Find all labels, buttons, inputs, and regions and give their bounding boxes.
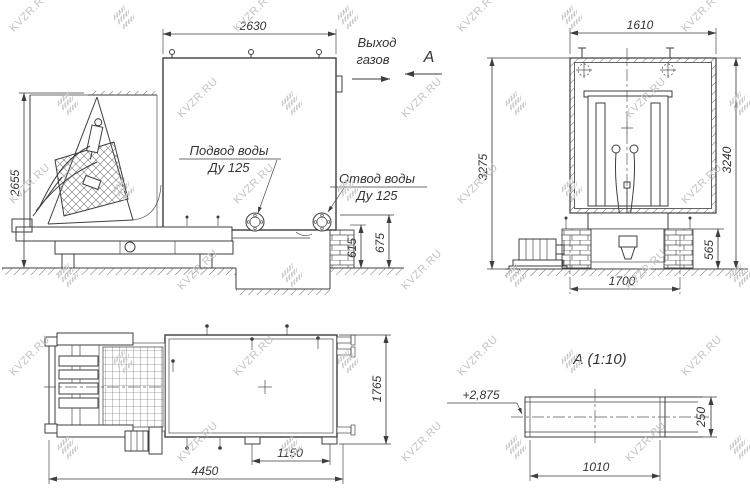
burner-motor xyxy=(509,239,567,269)
plan-pipe-stubs xyxy=(337,335,355,435)
view-arrow-label: А xyxy=(423,49,435,66)
detail-view-a: А (1:10) +2,875 1010 xyxy=(447,351,717,481)
water-outlet-label: Отвод воды xyxy=(339,171,415,186)
top-fitting-icon xyxy=(578,48,674,58)
side-view-ground xyxy=(2,268,404,295)
dim-side-top-width: 2630 xyxy=(239,19,267,33)
front-view: 1610 3275 3240 565 1700 xyxy=(476,18,748,294)
front-view-base xyxy=(509,213,693,294)
gas-outlet-label-line1: Выход xyxy=(357,35,396,50)
side-view: 2630 2655 615 675 Подвод воды Ду 125 Отв… xyxy=(2,19,442,295)
gas-outlet-label-line2: газов xyxy=(356,52,389,67)
plan-motor xyxy=(125,427,162,454)
dim-detail-width: 1010 xyxy=(583,460,610,474)
water-outlet-dn-label: Ду 125 xyxy=(354,188,398,203)
dim-front-top-width: 1610 xyxy=(627,18,654,32)
dim-plan-width: 1765 xyxy=(370,375,384,402)
dim-front-right-height: 3240 xyxy=(720,146,734,173)
dim-front-left-height: 3275 xyxy=(476,153,490,180)
water-inlet-label: Подвод воды xyxy=(190,143,269,158)
view-direction-arrow-icon xyxy=(405,71,442,77)
plan-view: 1765 1150 4450 xyxy=(44,324,391,484)
gas-flow-arrow-icon xyxy=(352,76,390,82)
dim-side-left-height: 2655 xyxy=(8,169,22,197)
elevation-callout: +2,875 xyxy=(447,388,522,414)
water-inlet-dn-label: Ду 125 xyxy=(206,160,250,175)
dim-overall-length: 4450 xyxy=(192,464,219,478)
dim-front-bottom-width: 1700 xyxy=(609,274,636,288)
dim-foundation-height: 675 xyxy=(373,233,387,253)
detail-title: А (1:10) xyxy=(572,351,626,368)
front-view-boiler-body xyxy=(570,48,716,232)
drawing-sheet: KVZR.RUKVZR.RUKVZR.RUKVZR.RUKVZR.RUKVZR.… xyxy=(0,0,750,500)
dim-flange-height: 615 xyxy=(345,238,359,258)
side-view-fuel-hopper xyxy=(30,91,157,227)
side-view-boiler-body xyxy=(133,50,342,231)
dim-pedestal-height: 565 xyxy=(702,240,716,260)
eyebolt-icon xyxy=(168,50,323,59)
elevation-mark: +2,875 xyxy=(462,388,499,402)
engineering-drawing: 2630 2655 615 675 Подвод воды Ду 125 Отв… xyxy=(0,0,750,500)
dim-detail-height: 250 xyxy=(694,407,708,428)
dim-support-spacing: 1150 xyxy=(277,446,303,460)
